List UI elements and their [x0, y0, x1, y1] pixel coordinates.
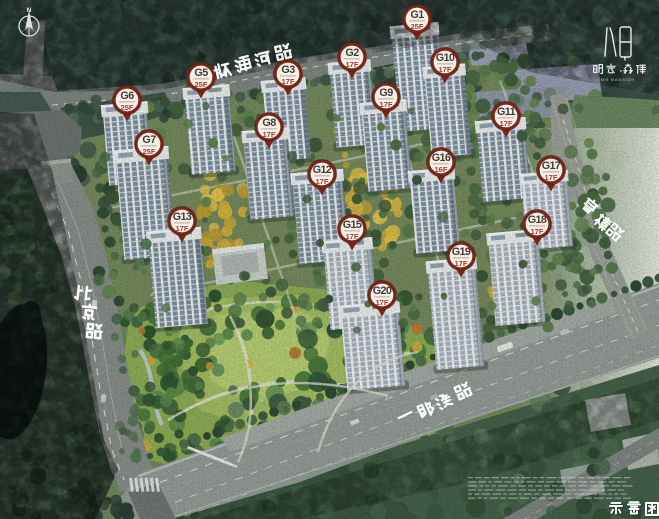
svg-text:G10: G10	[436, 52, 455, 64]
svg-text:G17: G17	[542, 160, 561, 172]
svg-text:G3: G3	[281, 64, 295, 76]
svg-text:17F: 17F	[175, 224, 188, 233]
svg-text:G18: G18	[528, 214, 547, 226]
svg-text:17F: 17F	[530, 227, 543, 236]
svg-text:G12: G12	[313, 164, 332, 176]
svg-text:G13: G13	[173, 211, 192, 223]
svg-text:G8: G8	[262, 117, 276, 129]
svg-text:17F: 17F	[345, 60, 358, 69]
svg-text:G7: G7	[142, 134, 156, 146]
svg-text:17F: 17F	[262, 130, 275, 139]
svg-text:G20: G20	[373, 285, 392, 297]
svg-text:G19: G19	[452, 246, 471, 258]
svg-text:G5: G5	[194, 67, 208, 79]
svg-text:17F: 17F	[379, 100, 392, 109]
svg-text:17F: 17F	[281, 77, 294, 86]
svg-text:17F: 17F	[438, 65, 451, 74]
svg-text:25F: 25F	[194, 80, 207, 89]
svg-text:25F: 25F	[410, 22, 423, 31]
svg-text:25F: 25F	[120, 103, 133, 112]
svg-text:17F: 17F	[315, 177, 328, 186]
svg-text:17F: 17F	[544, 173, 557, 182]
svg-text:G9: G9	[379, 87, 393, 99]
svg-text:G15: G15	[343, 219, 362, 231]
svg-text:N: N	[27, 7, 32, 14]
svg-text:17F: 17F	[345, 232, 358, 241]
svg-text:G1: G1	[410, 9, 424, 21]
svg-text:16F: 16F	[434, 165, 447, 174]
svg-text:G2: G2	[345, 47, 359, 59]
svg-text:17F: 17F	[499, 119, 512, 128]
svg-text:25F: 25F	[142, 147, 155, 156]
svg-text:G6: G6	[120, 90, 134, 102]
svg-text:G11: G11	[497, 106, 516, 118]
svg-text:MH MANSION: MH MANSION	[601, 77, 635, 82]
svg-text:G16: G16	[432, 152, 451, 164]
svg-text:17F: 17F	[454, 259, 467, 268]
svg-text:17F: 17F	[375, 298, 388, 307]
